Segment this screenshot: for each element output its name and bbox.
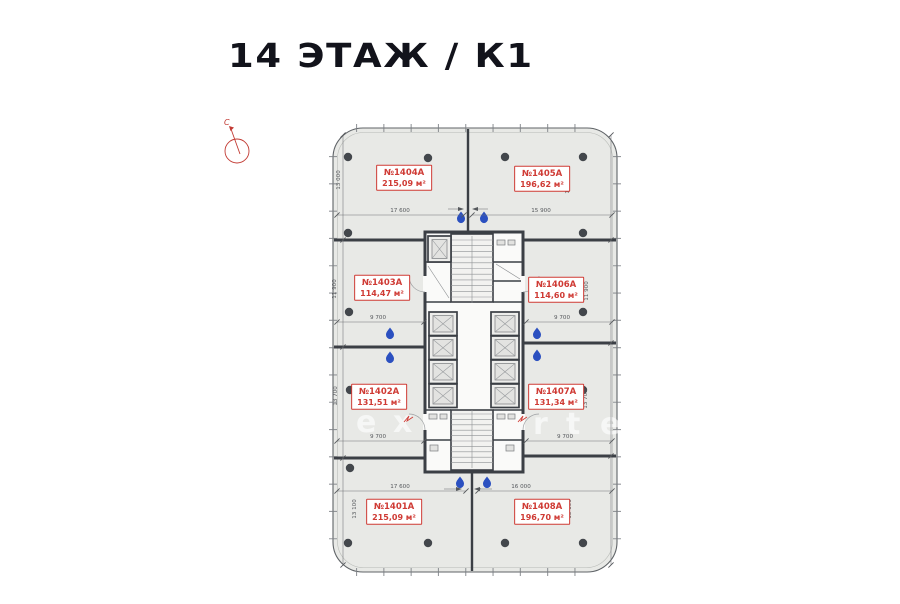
unit-label-1401a[interactable]: №1401A 215,09 м²: [366, 499, 422, 525]
column-dot: [346, 464, 354, 472]
floor-plan-drawing: exrte: [0, 0, 900, 604]
column-dot: [424, 539, 432, 547]
unit-area: 131,51 м²: [357, 398, 401, 408]
dim-width-1401a: 17 600: [390, 484, 410, 490]
column-dot: [579, 539, 587, 547]
column-dot: [501, 153, 509, 161]
unit-number: №1401A: [372, 502, 416, 513]
unit-area: 114,60 м²: [534, 291, 578, 301]
column-dot: [345, 308, 353, 316]
dim-width-1402a: 9 700: [370, 434, 386, 440]
north-label: С: [224, 118, 230, 127]
floorplan-page: 14 ЭТАЖ / К1 exrte: [0, 0, 900, 604]
unit-label-1407a[interactable]: №1407A 131,34 м²: [528, 384, 584, 410]
unit-area: 196,70 м²: [520, 513, 564, 523]
column-dot: [424, 154, 432, 162]
unit-area: 114,47 м²: [360, 289, 404, 299]
unit-number: №1406A: [534, 280, 578, 291]
dim-side-right-2: 11 900: [584, 281, 590, 301]
dim-width-1404a: 17 600: [390, 208, 410, 214]
unit-label-1406a[interactable]: №1406A 114,60 м²: [528, 277, 584, 303]
dim-width-1405a: 15 900: [531, 208, 551, 214]
column-dot: [344, 229, 352, 237]
dim-width-1406a: 9 700: [554, 315, 570, 321]
unit-label-1408a[interactable]: №1408A 196,70 м²: [514, 499, 570, 525]
unit-label-1404a[interactable]: №1404A 215,09 м²: [376, 165, 432, 191]
dim-width-1403a: 9 700: [370, 315, 386, 321]
unit-number: №1403A: [360, 278, 404, 289]
watermark-letter: r: [533, 407, 548, 442]
unit-number: №1402A: [357, 387, 401, 398]
dim-side-right-3: 13 700: [583, 389, 589, 409]
dim-width-1407a: 9 700: [557, 434, 573, 440]
dim-side-left-2: 11 900: [332, 279, 338, 299]
unit-number: №1405A: [520, 169, 564, 180]
dim-side-left-1: 13 000: [336, 170, 342, 190]
unit-area: 215,09 м²: [382, 179, 426, 189]
column-dot: [579, 153, 587, 161]
dim-side-left-3: 13 700: [333, 386, 339, 406]
unit-area: 131,34 м²: [534, 398, 578, 408]
column-dot: [344, 539, 352, 547]
dim-width-1408a: 16 000: [511, 484, 531, 490]
north-compass-icon: С: [224, 118, 249, 163]
column-dot: [579, 229, 587, 237]
unit-label-1403a[interactable]: №1403A 114,47 м²: [354, 275, 410, 301]
building-core: [409, 232, 539, 472]
unit-area: 215,09 м²: [372, 513, 416, 523]
unit-number: №1404A: [382, 168, 426, 179]
unit-number: №1408A: [520, 502, 564, 513]
unit-label-1405a[interactable]: №1405A 196,62 м²: [514, 166, 570, 192]
column-dot: [344, 153, 352, 161]
unit-label-1402a[interactable]: №1402A 131,51 м²: [351, 384, 407, 410]
dim-side-left-4: 13 100: [352, 499, 358, 519]
unit-number: №1407A: [534, 387, 578, 398]
watermark-letter: x: [393, 405, 412, 440]
unit-area: 196,62 м²: [520, 180, 564, 190]
column-dot: [501, 539, 509, 547]
column-dot: [579, 308, 587, 316]
watermark-letter: e: [600, 407, 620, 442]
